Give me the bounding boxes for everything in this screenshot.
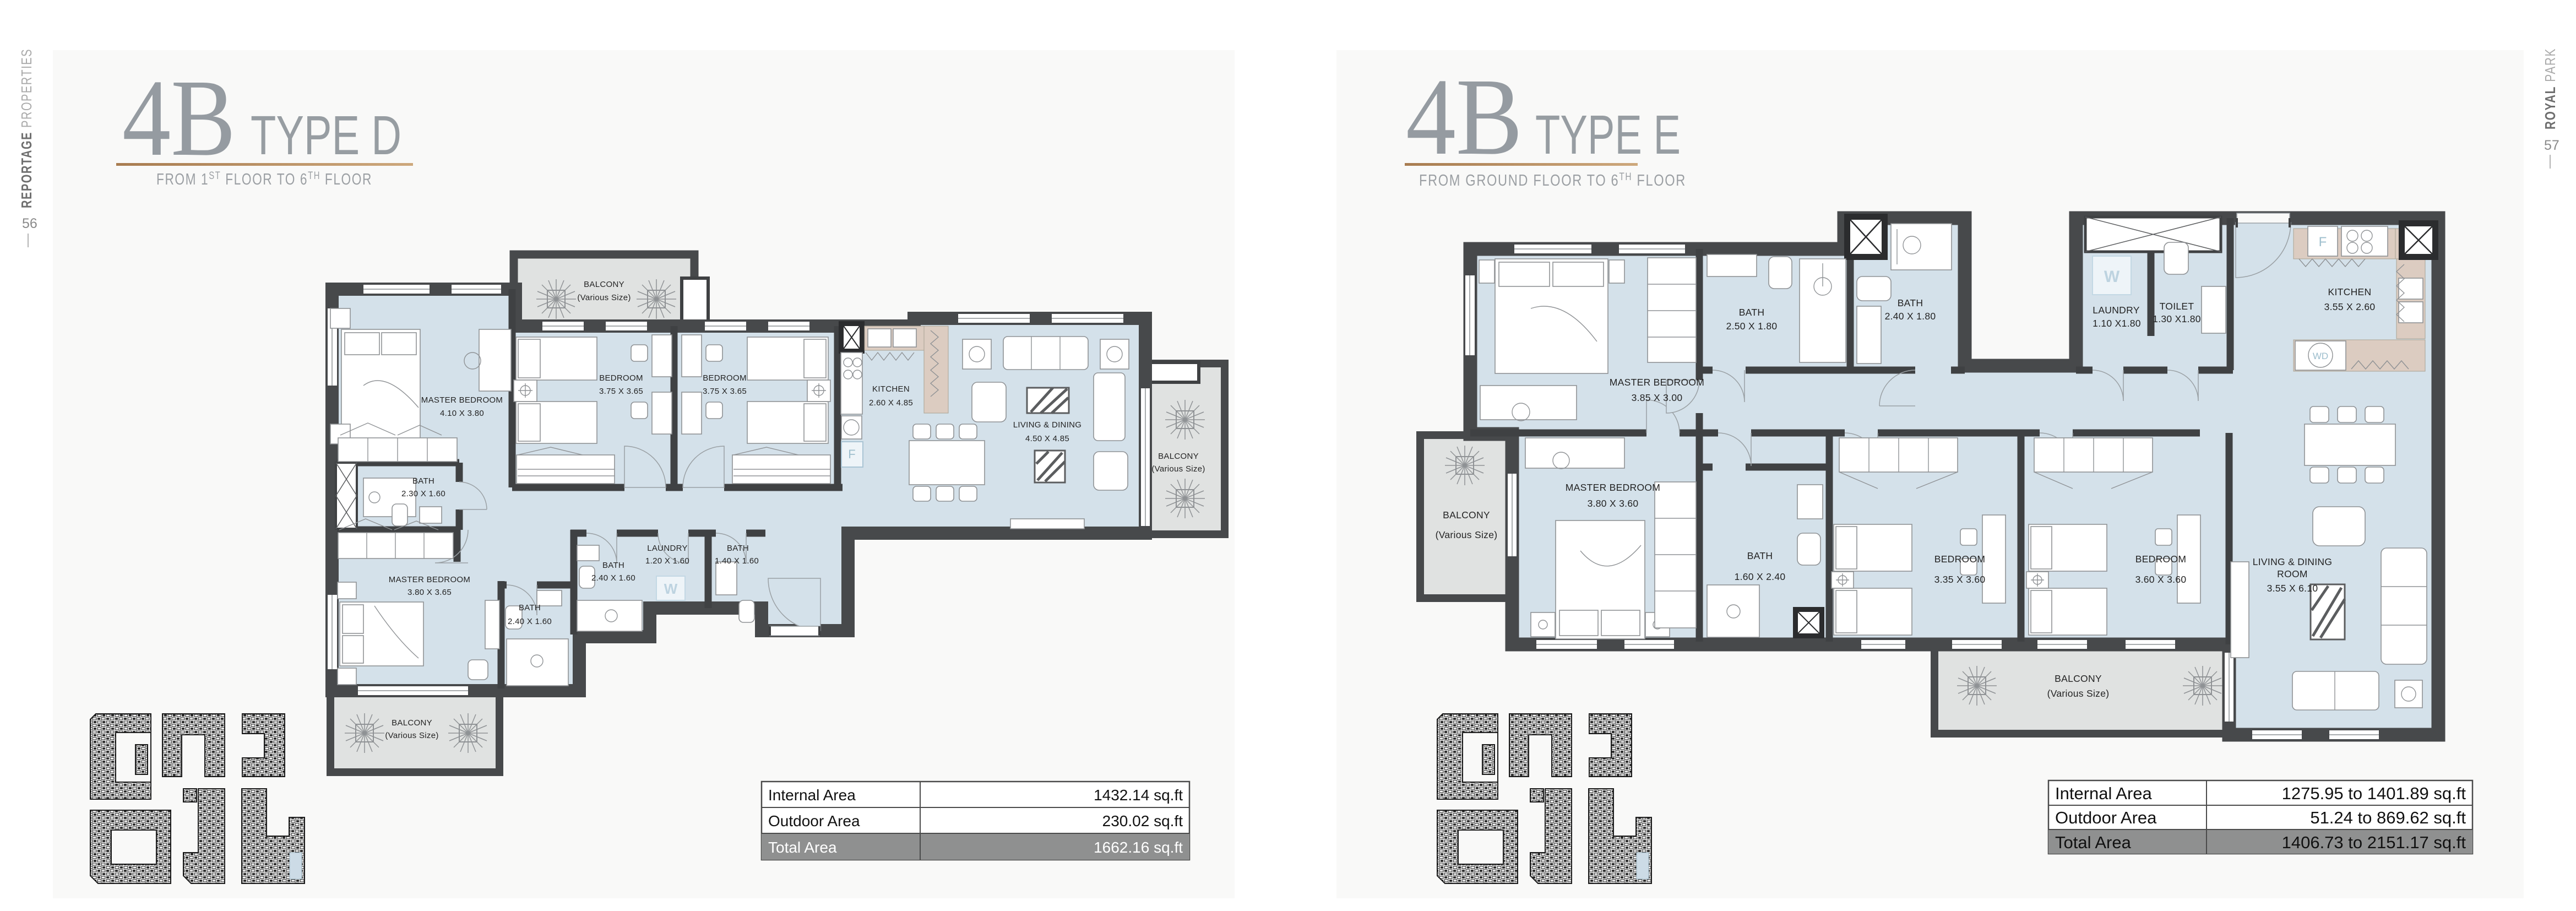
svg-text:BALCONY: BALCONY <box>392 718 432 728</box>
svg-text:BATH: BATH <box>1747 550 1773 561</box>
svg-text:REPORTAGE PROPERTIES: REPORTAGE PROPERTIES <box>18 48 35 208</box>
svg-text:FROM 1ST FLOOR TO 6TH FLOOR: FROM 1ST FLOOR TO 6TH FLOOR <box>156 170 372 188</box>
svg-text:2.40 X 1.60: 2.40 X 1.60 <box>591 573 635 583</box>
svg-text:LAUNDRY: LAUNDRY <box>2093 305 2139 316</box>
svg-text:(Various Size): (Various Size) <box>2047 688 2110 699</box>
svg-text:LIVING & DINING: LIVING & DINING <box>1013 420 1082 430</box>
svg-text:1.40 X 1.60: 1.40 X 1.60 <box>715 556 759 566</box>
svg-text:BEDROOM: BEDROOM <box>599 373 643 383</box>
svg-text:TYPE D: TYPE D <box>251 105 401 166</box>
svg-text:1432.14 sq.ft: 1432.14 sq.ft <box>1094 787 1183 804</box>
svg-text:56: 56 <box>22 216 37 231</box>
svg-text:WD: WD <box>2313 351 2328 361</box>
svg-text:Outdoor Area: Outdoor Area <box>768 812 860 829</box>
svg-text:4.50 X 4.85: 4.50 X 4.85 <box>1025 434 1069 443</box>
svg-text:3.80 X 3.60: 3.80 X 3.60 <box>1588 498 1639 509</box>
svg-text:FROM GROUND FLOOR TO 6TH FLOOR: FROM GROUND FLOOR TO 6TH FLOOR <box>1419 171 1686 189</box>
svg-text:BALCONY: BALCONY <box>2055 673 2102 684</box>
svg-text:230.02 sq.ft: 230.02 sq.ft <box>1102 812 1183 829</box>
svg-text:4B: 4B <box>1406 56 1523 178</box>
svg-text:Total Area: Total Area <box>768 839 837 856</box>
svg-text:F: F <box>2319 235 2327 250</box>
svg-text:1.20 X 1.60: 1.20 X 1.60 <box>645 556 689 566</box>
svg-text:57: 57 <box>2544 138 2559 153</box>
svg-text:4B: 4B <box>122 57 236 179</box>
svg-text:Internal Area: Internal Area <box>768 787 856 804</box>
svg-text:51.24 to 869.62 sq.ft: 51.24 to 869.62 sq.ft <box>2310 808 2466 827</box>
svg-text:W: W <box>664 581 678 597</box>
svg-text:TOILET: TOILET <box>2160 301 2194 312</box>
svg-text:1.30 X1.80: 1.30 X1.80 <box>2153 313 2201 324</box>
svg-text:BATH: BATH <box>1898 297 1923 308</box>
svg-text:2.60 X 4.85: 2.60 X 4.85 <box>869 398 913 408</box>
svg-text:ROOM: ROOM <box>2277 568 2308 579</box>
svg-text:1275.95 to 1401.89 sq.ft: 1275.95 to 1401.89 sq.ft <box>2282 784 2466 803</box>
svg-text:MASTER BEDROOM: MASTER BEDROOM <box>389 575 470 584</box>
svg-text:MASTER BEDROOM: MASTER BEDROOM <box>1566 482 1660 493</box>
svg-text:KITCHEN: KITCHEN <box>872 384 910 394</box>
svg-text:Total Area: Total Area <box>2055 833 2132 852</box>
svg-text:3.75 X 3.65: 3.75 X 3.65 <box>703 387 747 396</box>
svg-text:LIVING & DINING: LIVING & DINING <box>2253 556 2333 567</box>
svg-text:TYPE E: TYPE E <box>1535 104 1681 166</box>
svg-text:Internal Area: Internal Area <box>2055 784 2153 803</box>
svg-text:1662.16 sq.ft: 1662.16 sq.ft <box>1094 839 1183 856</box>
svg-text:BEDROOM: BEDROOM <box>2135 554 2187 565</box>
svg-text:1.10 X1.80: 1.10 X1.80 <box>2093 318 2141 329</box>
svg-text:BALCONY: BALCONY <box>1443 509 1490 520</box>
svg-text:W: W <box>2104 268 2120 286</box>
svg-text:BEDROOM: BEDROOM <box>1934 554 1986 565</box>
svg-text:BATH: BATH <box>727 544 749 553</box>
svg-text:BATH: BATH <box>519 603 541 612</box>
svg-text:3.75 X 3.65: 3.75 X 3.65 <box>599 387 643 396</box>
svg-text:2.30 X 1.60: 2.30 X 1.60 <box>401 489 445 498</box>
svg-text:3.35 X 3.60: 3.35 X 3.60 <box>1934 574 1986 585</box>
svg-text:3.55 X 2.60: 3.55 X 2.60 <box>2324 301 2376 312</box>
svg-text:Outdoor Area: Outdoor Area <box>2055 808 2157 827</box>
svg-text:3.60 X 3.60: 3.60 X 3.60 <box>2135 574 2187 585</box>
svg-text:MASTER BEDROOM: MASTER BEDROOM <box>421 395 503 405</box>
svg-text:BEDROOM: BEDROOM <box>703 373 747 383</box>
svg-text:2.50 X 1.80: 2.50 X 1.80 <box>1726 321 1778 332</box>
svg-text:(Various Size): (Various Size) <box>577 293 631 302</box>
svg-text:(Various Size): (Various Size) <box>385 731 438 740</box>
svg-text:BATH: BATH <box>412 476 434 486</box>
svg-text:BALCONY: BALCONY <box>1158 452 1199 461</box>
svg-text:MASTER BEDROOM: MASTER BEDROOM <box>1610 377 1704 388</box>
svg-text:KITCHEN: KITCHEN <box>2328 286 2372 297</box>
svg-text:BALCONY: BALCONY <box>584 280 624 289</box>
svg-text:2.40 X 1.80: 2.40 X 1.80 <box>1885 311 1936 322</box>
svg-text:3.55 X 6.10: 3.55 X 6.10 <box>2267 583 2318 594</box>
svg-text:BATH: BATH <box>602 561 624 570</box>
svg-text:(Various Size): (Various Size) <box>1151 464 1205 474</box>
svg-text:ROYAL PARK: ROYAL PARK <box>2542 48 2558 129</box>
svg-text:(Various Size): (Various Size) <box>1436 529 1498 540</box>
svg-text:LAUNDRY: LAUNDRY <box>647 544 688 553</box>
svg-text:3.85 X 3.00: 3.85 X 3.00 <box>1632 392 1683 403</box>
svg-text:F: F <box>848 447 855 461</box>
svg-text:3.80 X 3.65: 3.80 X 3.65 <box>407 588 452 597</box>
svg-text:1406.73 to 2151.17 sq.ft: 1406.73 to 2151.17 sq.ft <box>2282 833 2466 852</box>
svg-text:1.60 X 2.40: 1.60 X 2.40 <box>1735 571 1786 582</box>
svg-text:4.10 X 3.80: 4.10 X 3.80 <box>440 409 484 418</box>
svg-text:2.40 X 1.60: 2.40 X 1.60 <box>508 617 552 626</box>
svg-text:BATH: BATH <box>1739 307 1765 318</box>
